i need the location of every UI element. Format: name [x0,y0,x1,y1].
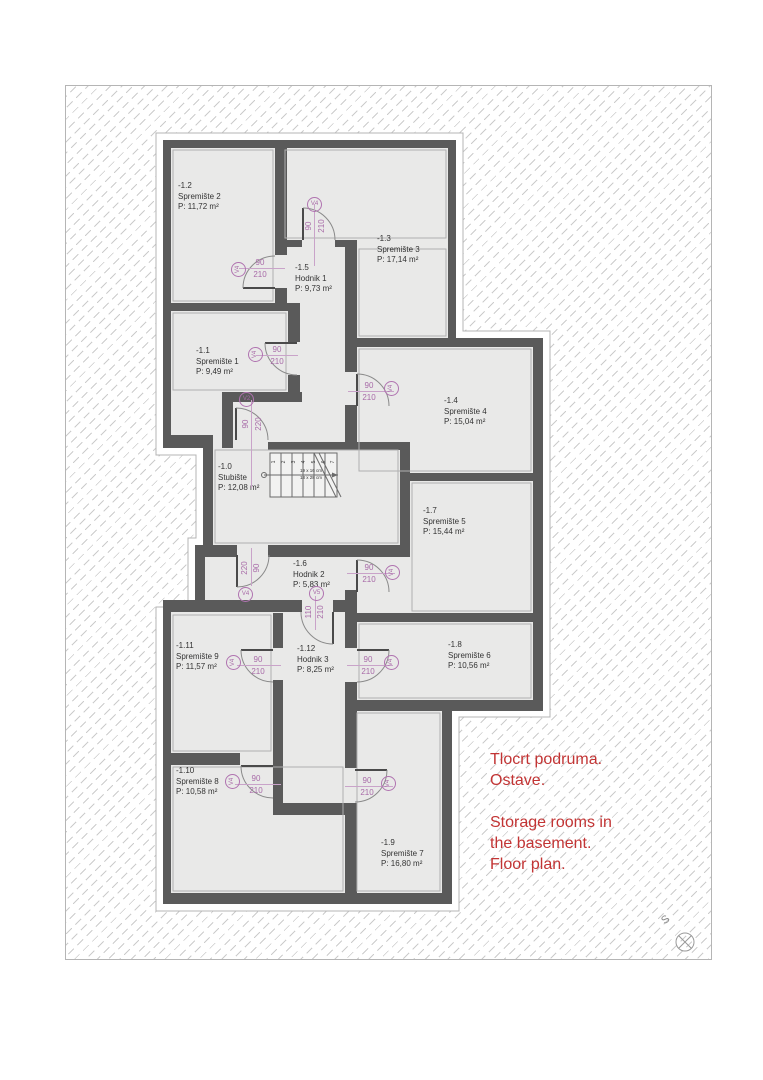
room-code: -1.4 [444,396,554,407]
door-height-dim: 210 [241,667,275,677]
title-english: Storage rooms in the basement. Floor pla… [490,812,675,875]
room-code: -1.2 [178,181,288,192]
room-code: -1.11 [176,641,286,652]
room-area: P: 9,49 m² [196,367,306,378]
door-width-dim: 90 [260,345,294,355]
room-label: -1.7 Spremište 5 P: 15,44 m² [423,506,533,538]
title-line: Storage rooms in [490,812,675,833]
room-label: -1.2 Spremište 2 P: 11,72 m² [178,181,288,213]
title-line: the basement. [490,833,675,854]
room-name: Spremište 6 [448,651,558,662]
room-code: -1.7 [423,506,533,517]
room-area: P: 11,72 m² [178,202,288,213]
door-tag: V4 [385,565,400,580]
door-width-dim: 90 [241,407,251,441]
room-code: -1.3 [377,234,487,245]
room-label: -1.4 Spremište 4 P: 15,04 m² [444,396,554,428]
stair-step-number: 7 [330,460,336,463]
title-line: Tlocrt podruma. [490,749,675,770]
room-area: P: 16,80 m² [381,859,491,870]
room-name: Spremište 4 [444,407,554,418]
door-height-dim: 210 [351,667,385,677]
title-croatian: Tlocrt podruma. Ostave. [490,749,675,791]
room-code: -1.9 [381,838,491,849]
door-height-dim: 210 [352,393,386,403]
room-label: -1.3 Spremište 3 P: 17,14 m² [377,234,487,266]
dimension-line [237,665,281,666]
door-width-dim: 90 [252,551,262,585]
room-label: -1.5 Hodnik 1 P: 9,73 m² [295,263,405,295]
door-height-dim: 210 [239,786,273,796]
door-width-dim: 90 [241,655,275,665]
room-code: -1.8 [448,640,558,651]
room-area: P: 12,08 m² [218,483,328,494]
room-label: -1.9 Spremište 7 P: 16,80 m² [381,838,491,870]
room-name: Spremište 2 [178,192,288,203]
door-width-dim: 90 [304,209,314,243]
door-width-dim: 90 [351,655,385,665]
door-tag: V4 [238,587,253,602]
door-tag: V4 [225,774,240,789]
room-code: -1.5 [295,263,405,274]
room-area: P: 15,44 m² [423,527,533,538]
dimension-line [235,784,281,785]
dimension-line [251,400,252,488]
door-tag: V4 [231,262,246,277]
dimension-line [251,548,252,586]
door-width-dim: 90 [350,776,384,786]
door-width-dim: 90 [243,258,277,268]
room-code: -1.0 [218,462,328,473]
door-height-dim: 210 [243,270,277,280]
linework-layer: 1 2 3 4 5 6 7 19 x 16 cm 18 x 28 cm [0,0,763,1080]
dimension-line [315,596,316,630]
room-label: -1.8 Spremište 6 P: 10,56 m² [448,640,558,672]
door-height-dim: 210 [260,357,294,367]
room-code: -1.12 [297,644,407,655]
door-tag: V4 [248,347,263,362]
door-height-dim: 210 [352,575,386,585]
door-height-dim: 210 [350,788,384,798]
title-annotation: Tlocrt podruma. Ostave. Storage rooms in… [490,749,675,896]
door-height-dim: 220 [254,407,264,441]
title-line: Ostave. [490,770,675,791]
room-label: -1.0 Stubište P: 12,08 m² [218,462,328,494]
room-name: Spremište 5 [423,517,533,528]
door-width-dim: 90 [239,774,273,784]
door-width-dim: 90 [352,563,386,573]
room-name: Spremište 3 [377,245,487,256]
room-name: Hodnik 1 [295,274,405,285]
door-height-dim: 210 [317,209,327,243]
door-tag: V4 [307,197,322,212]
room-name: Spremište 7 [381,849,491,860]
room-area: P: 15,04 m² [444,417,554,428]
room-name: Stubište [218,473,328,484]
dimension-line [314,204,315,266]
room-area: P: 10,56 m² [448,661,558,672]
north-symbol-icon [676,933,694,951]
room-area: P: 9,73 m² [295,284,405,295]
door-tag: V4 [384,655,399,670]
door-tag: V4 [384,381,399,396]
door-height-dim: 220 [240,551,250,585]
door-tag: V5 [309,586,324,601]
door-tag: V4 [381,776,396,791]
floor-plan-sheet: 1 2 3 4 5 6 7 19 x 16 cm 18 x 28 cm -1.0… [0,0,763,1080]
door-width-dim: 90 [352,381,386,391]
title-line: Floor plan. [490,854,675,875]
door-tag: V2 [239,392,254,407]
door-tag: V4 [226,655,241,670]
